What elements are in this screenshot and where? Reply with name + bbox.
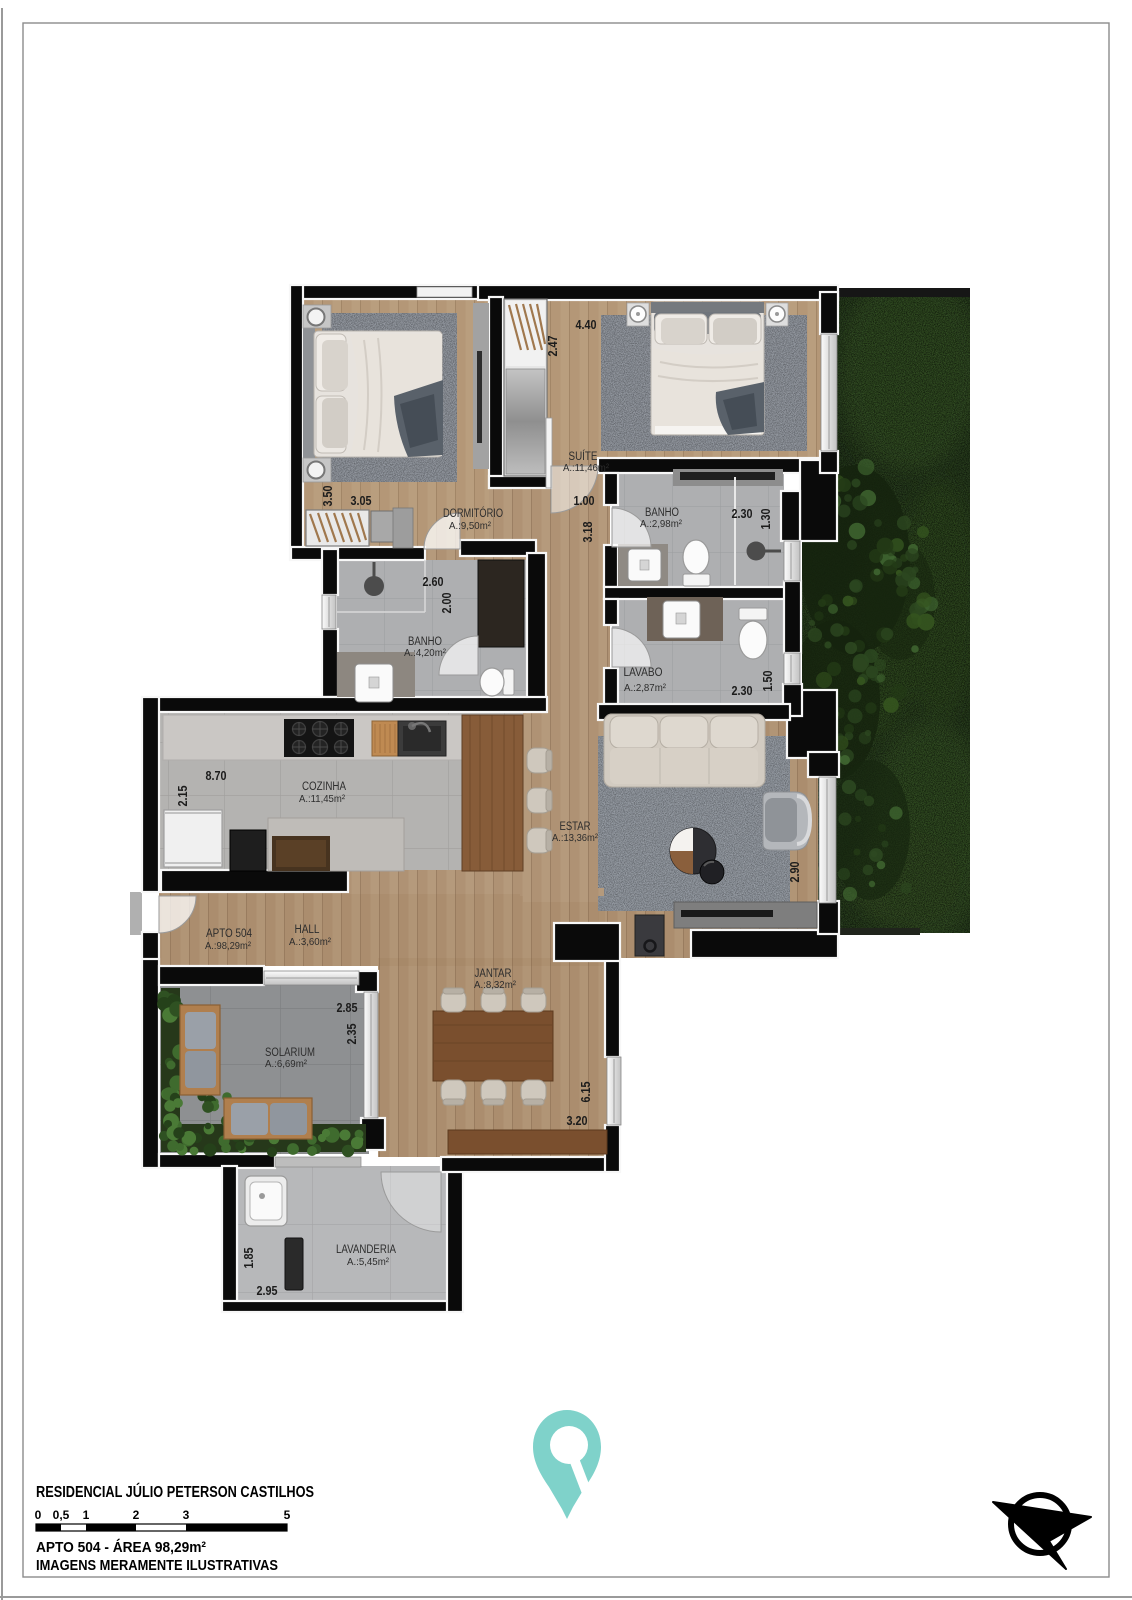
svg-text:3.18: 3.18 — [580, 522, 595, 543]
svg-text:1.30: 1.30 — [758, 509, 773, 530]
svg-text:2.95: 2.95 — [257, 1283, 278, 1298]
svg-text:A.:5,45m²: A.:5,45m² — [347, 1256, 389, 1268]
svg-text:A.:2,98m²: A.:2,98m² — [640, 518, 682, 530]
svg-text:LAVANDERIA: LAVANDERIA — [336, 1244, 396, 1256]
svg-text:A.:3,60m²: A.:3,60m² — [289, 936, 331, 948]
svg-text:DORMITÓRIO: DORMITÓRIO — [443, 507, 503, 520]
svg-text:2.35: 2.35 — [344, 1024, 359, 1045]
svg-text:3.20: 3.20 — [567, 1113, 588, 1128]
svg-text:IMAGENS MERAMENTE ILUSTRATIVAS: IMAGENS MERAMENTE ILUSTRATIVAS — [36, 1557, 278, 1574]
svg-text:2.60: 2.60 — [423, 574, 444, 589]
svg-text:0,5: 0,5 — [53, 1508, 70, 1522]
svg-text:A.:8,32m²: A.:8,32m² — [474, 979, 516, 991]
svg-text:2.15: 2.15 — [175, 786, 190, 807]
svg-text:0: 0 — [35, 1508, 42, 1522]
svg-text:A.:4,20m²: A.:4,20m² — [404, 647, 446, 659]
svg-text:1.50: 1.50 — [760, 671, 775, 692]
svg-text:A.:6,69m²: A.:6,69m² — [265, 1058, 307, 1070]
svg-text:6.15: 6.15 — [578, 1082, 593, 1103]
svg-text:2.00: 2.00 — [439, 593, 454, 614]
svg-text:4.40: 4.40 — [576, 317, 597, 332]
svg-text:2.30: 2.30 — [732, 683, 753, 698]
svg-text:RESIDENCIAL JÚLIO PETERSON CAS: RESIDENCIAL JÚLIO PETERSON CASTILHOS — [36, 1483, 314, 1501]
svg-text:A.:98,29m²: A.:98,29m² — [205, 940, 251, 952]
svg-text:1: 1 — [83, 1508, 90, 1522]
svg-text:2.85: 2.85 — [337, 1000, 358, 1015]
svg-text:3: 3 — [183, 1508, 190, 1522]
svg-text:2.47: 2.47 — [545, 336, 560, 357]
svg-text:A.:9,50m²: A.:9,50m² — [449, 520, 491, 532]
svg-text:HALL: HALL — [295, 924, 321, 936]
svg-text:A.:2,87m²: A.:2,87m² — [624, 682, 666, 694]
svg-text:1.00: 1.00 — [574, 493, 595, 508]
svg-text:APTO 504: APTO 504 — [206, 928, 253, 940]
svg-text:A.:11,46m²: A.:11,46m² — [563, 462, 609, 474]
svg-text:2: 2 — [133, 1508, 140, 1522]
svg-text:5: 5 — [284, 1508, 291, 1522]
svg-text:A.:13,36m²: A.:13,36m² — [552, 832, 598, 844]
svg-text:A.:11,45m²: A.:11,45m² — [299, 793, 345, 805]
svg-text:3.05: 3.05 — [351, 493, 372, 508]
svg-text:2.90: 2.90 — [787, 862, 802, 883]
svg-text:APTO 504 - ÁREA 98,29m²: APTO 504 - ÁREA 98,29m² — [36, 1539, 206, 1556]
svg-text:8.70: 8.70 — [206, 768, 227, 783]
svg-text:LAVABO: LAVABO — [624, 667, 663, 679]
svg-text:3.50: 3.50 — [320, 486, 335, 507]
svg-text:2.30: 2.30 — [732, 506, 753, 521]
svg-text:1.85: 1.85 — [241, 1248, 256, 1269]
svg-text:COZINHA: COZINHA — [302, 781, 346, 793]
